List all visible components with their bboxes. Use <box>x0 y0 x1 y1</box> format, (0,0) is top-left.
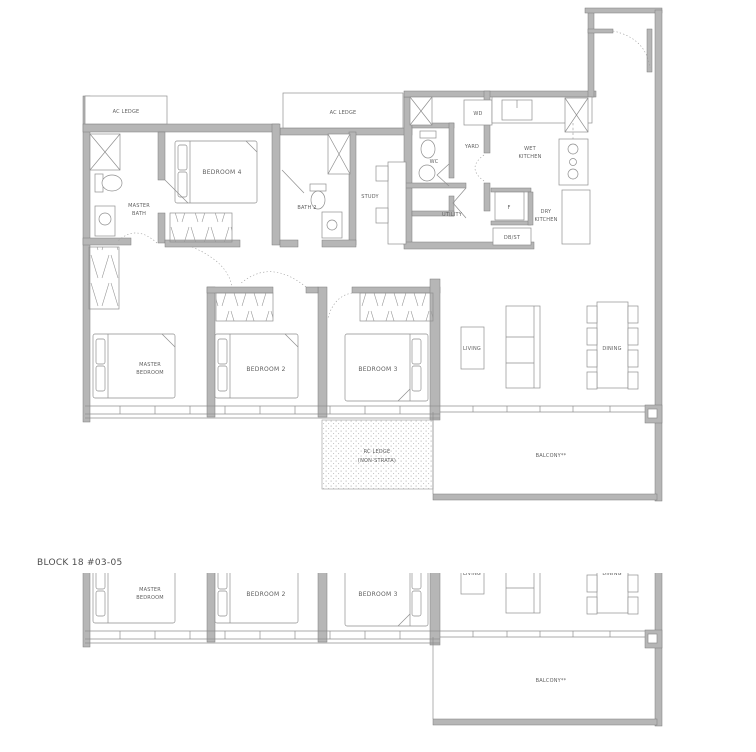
door-leaf <box>282 170 304 193</box>
basin-icon <box>95 206 115 236</box>
balcony-door-icon <box>648 409 657 418</box>
bedroom2: BEDROOM 2 <box>215 293 298 398</box>
wardrobe-icon <box>360 293 433 321</box>
room-label-wet-kitchen-2: KITCHEN <box>518 154 541 160</box>
living-dining: LIVING DINING <box>461 302 638 389</box>
room-label-wd: WD <box>473 111 482 117</box>
rc-ledge: RC LEDGE (NON-STRATA) <box>322 420 433 489</box>
hob-icon <box>559 139 588 185</box>
wardrobe-icon <box>216 293 273 321</box>
window-band-bedrooms <box>85 406 440 418</box>
ac-ledge-mid: AC LEDGE <box>283 93 403 128</box>
window-band-living <box>440 406 657 418</box>
room-label-balcony: BALCONY** <box>536 453 567 459</box>
room-label-dry-kitchen-1: DRY <box>541 209 552 215</box>
room-label-bath2: BATH 2 <box>297 205 316 211</box>
bedroom4: BEDROOM 4 <box>165 141 257 242</box>
counter-icon <box>562 190 590 244</box>
desk-icon <box>388 162 406 244</box>
room-label-bedroom4: BEDROOM 4 <box>202 169 241 176</box>
wet-kitchen: WET KITCHEN <box>492 97 592 185</box>
toilet-icon <box>420 131 436 158</box>
room-label-master-bedroom-2: BEDROOM <box>136 370 164 376</box>
room-label-study: STUDY <box>361 194 379 200</box>
wardrobe-icon <box>89 247 119 309</box>
bath2: BATH 2 <box>282 134 350 238</box>
study: STUDY <box>361 162 406 244</box>
room-label-ac-ledge-mid: AC LEDGE <box>330 110 357 116</box>
room-label-master-bath-1: MASTER <box>128 203 150 209</box>
room-label-ac-ledge-left: AC LEDGE <box>113 109 140 115</box>
room-label-wc: WC <box>430 159 439 165</box>
room-label-bedroom3: BEDROOM 3 <box>358 366 397 373</box>
room-label-living: LIVING <box>463 346 481 352</box>
room-label-utility: UTILITY <box>442 212 463 218</box>
plan-title: BLOCK 18 #03-05 <box>37 558 123 568</box>
room-label-bedroom2: BEDROOM 2 <box>246 366 285 373</box>
wardrobe-icon <box>170 213 232 242</box>
room-label-master-bath-2: BATH <box>132 211 146 217</box>
basin-icon <box>419 165 435 181</box>
master-bath: MASTER BATH <box>90 134 150 236</box>
room-label-rc-ledge-2: (NON-STRATA) <box>358 458 396 464</box>
room-label-rc-ledge-1: RC LEDGE <box>364 449 391 455</box>
room-label-master-bedroom-1: MASTER <box>139 362 161 368</box>
room-label-dining: DINING <box>602 346 621 352</box>
toilet-icon <box>95 174 122 192</box>
room-label-fridge: F <box>507 205 510 211</box>
bed-icon <box>93 334 175 398</box>
master-bedroom: MASTER BEDROOM <box>89 247 175 398</box>
room-label-wet-kitchen-1: WET <box>524 146 537 152</box>
sink-icon <box>322 212 342 238</box>
room-label-yard: YARD <box>464 144 479 150</box>
door-leaf <box>437 164 449 186</box>
utility-dry-kitchen: UTILITY F DRY KITCHEN DB/ST <box>442 188 590 245</box>
room-label-db-st: DB/ST <box>504 235 521 241</box>
ac-ledge-left: AC LEDGE <box>85 96 167 124</box>
chair-icon <box>376 166 388 181</box>
room-label-dry-kitchen-2: KITCHEN <box>534 217 557 223</box>
sofa-icon <box>506 306 540 388</box>
bedroom3: BEDROOM 3 <box>345 293 433 401</box>
balcony: BALCONY** <box>433 412 567 494</box>
floorplan-canvas: AC LEDGE AC LEDGE MASTER BATH <box>0 0 756 752</box>
chair-icon <box>376 208 388 223</box>
